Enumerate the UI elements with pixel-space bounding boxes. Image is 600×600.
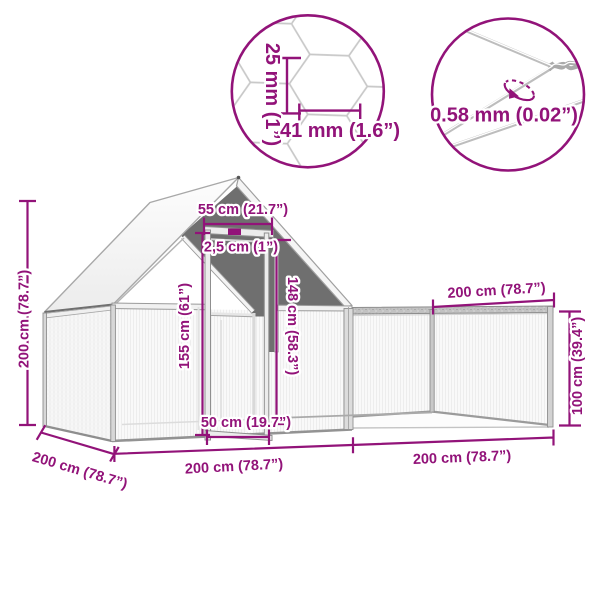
svg-text:2,5 cm (1”): 2,5 cm (1”) [204, 240, 278, 256]
svg-text:155 cm (61”): 155 cm (61”) [177, 283, 193, 369]
svg-text:41 mm (1.6”): 41 mm (1.6”) [280, 120, 400, 142]
svg-text:200 cm (78.7”): 200 cm (78.7”) [17, 270, 33, 369]
svg-text:0.58 mm (0.02”): 0.58 mm (0.02”) [430, 105, 578, 127]
svg-text:100 cm (39.4”): 100 cm (39.4”) [570, 317, 586, 416]
svg-text:50 cm (19.7”): 50 cm (19.7”) [201, 415, 291, 431]
svg-text:148 cm (58.3”): 148 cm (58.3”) [284, 277, 300, 376]
svg-text:55 cm (21.7”): 55 cm (21.7”) [198, 202, 288, 218]
